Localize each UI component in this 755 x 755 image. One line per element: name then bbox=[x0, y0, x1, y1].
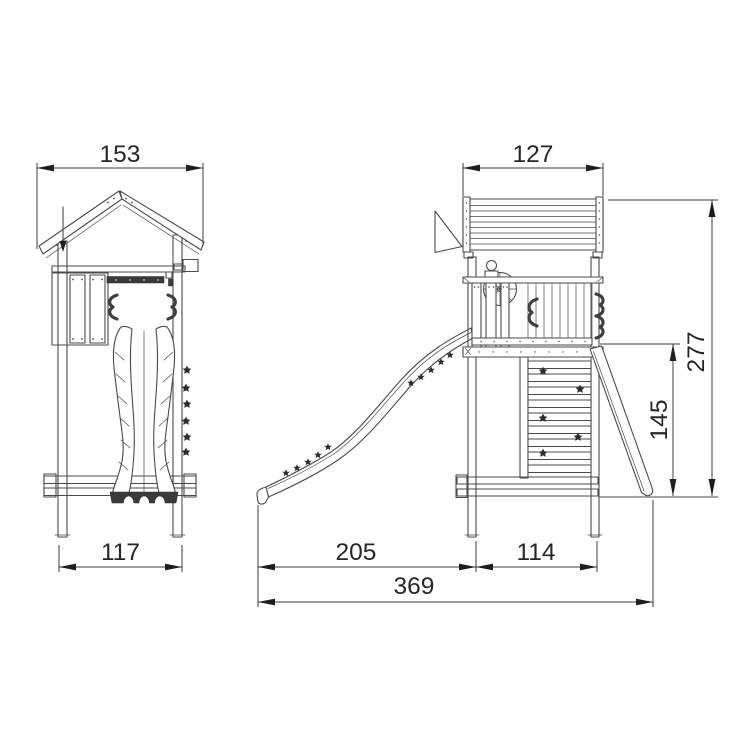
side-roof bbox=[463, 197, 603, 258]
dim-side-total-height: 277 bbox=[608, 200, 718, 496]
front-slide bbox=[110, 327, 178, 503]
front-climbing-holds bbox=[182, 366, 192, 456]
dim-label-117: 117 bbox=[101, 539, 140, 566]
dim-label-114: 114 bbox=[516, 539, 555, 566]
side-view bbox=[257, 197, 718, 537]
side-railing bbox=[472, 283, 592, 347]
assembly-drawing-canvas: 153 117 127 277 145 bbox=[0, 0, 755, 755]
dim-label-369: 369 bbox=[394, 573, 435, 600]
front-left-handle bbox=[110, 295, 117, 319]
climbing-wall bbox=[520, 357, 591, 478]
front-siding-panel bbox=[52, 273, 108, 345]
slide-stars bbox=[282, 351, 454, 476]
dim-side-total-length: 369 bbox=[258, 500, 653, 607]
front-right-handle bbox=[168, 295, 175, 319]
dim-label-277: 277 bbox=[683, 332, 710, 373]
dim-side-roof-depth: 127 bbox=[463, 141, 603, 196]
slide-foot bbox=[110, 492, 178, 503]
side-slide bbox=[257, 328, 473, 504]
dim-side-frame-depth: 114 bbox=[476, 539, 597, 570]
front-view bbox=[39, 191, 204, 537]
side-top-rail bbox=[463, 277, 603, 283]
dim-label-153: 153 bbox=[100, 141, 141, 168]
drawing-area: 153 117 127 277 145 bbox=[0, 0, 755, 755]
front-top-rail bbox=[52, 266, 185, 272]
dim-label-127: 127 bbox=[513, 141, 554, 168]
dim-label-205: 205 bbox=[336, 539, 377, 566]
dim-label-145: 145 bbox=[646, 400, 673, 441]
side-roof-gable bbox=[435, 211, 462, 253]
front-dark-bar bbox=[107, 277, 164, 284]
dim-front-base-width: 117 bbox=[59, 539, 182, 572]
wheel-knob bbox=[485, 261, 498, 278]
dimensions: 153 117 127 277 145 bbox=[37, 141, 718, 607]
side-platform bbox=[463, 347, 603, 357]
